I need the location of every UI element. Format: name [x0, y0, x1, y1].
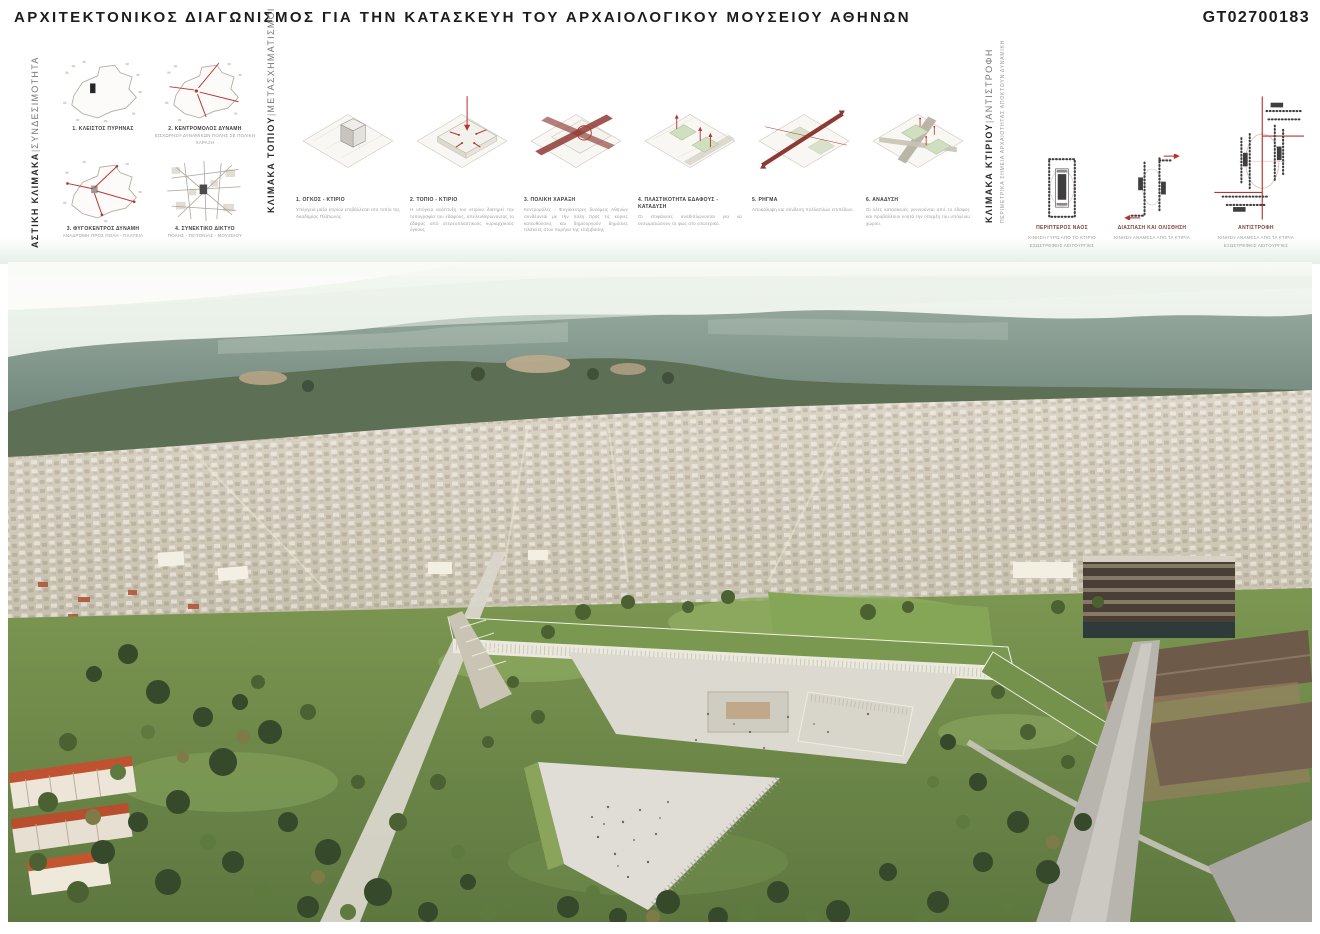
diagram-rift: 5. ΡΗΓΜΑ Αποκάλυψη και σύνδεση πολλαπλών… — [752, 88, 856, 234]
iso-rift-icon — [752, 88, 856, 190]
split-temple-plan-icon — [1123, 154, 1181, 220]
diagram-emergence: 6. ΑΝΑΔΥΣΗ Οι νέες κατασκευές γεννιούντα… — [866, 88, 970, 234]
diagram-centrifugal-force: 3. ΦΥΓΟΚΕΝΤΡΟΣ ΔΥΝΑΜΗ ΑΝΑΔΡΟΜΗ ΠΡΟΣ ΠΟΛΗ… — [52, 158, 154, 258]
diagram-peripteral-temple: ΠΕΡΙΠΤΕΡΟΣ ΝΑΟΣ ΚΙΝΗΣΗ ΓΥΡΩ ΑΠΟ ΤΟ ΚΤΙΡΙ… — [1018, 88, 1106, 251]
section-label-building-scale: ΚΛΙΜΑΚΑ ΚΤΙΡΙΟΥ|ΑΝΤΙΣΤΡΟΦΗ — [984, 58, 994, 223]
diagram-split-slide: ΔΙΑΣΠΑΣΗ ΚΑΙ ΟΛΙΣΘΗΣΗ ΚΙΝΗΣΗ ΑΝΑΜΕΣΑ ΑΠΟ… — [1106, 88, 1198, 251]
landscape-diagrams: 1. ΟΓΚΟΣ - ΚΤΙΡΙΟ Υπέργεια μάζα κτιρίου … — [296, 88, 972, 234]
section-label-landscape-scale: ΚΛΙΜΑΚΑ ΤΟΠΙΟΥ|ΜΕΤΑΣΧΗΜΑΤΙΣΜΟΙ — [266, 58, 276, 213]
network-plan-icon — [163, 158, 247, 224]
centripetal-plan-icon — [163, 58, 247, 124]
urban-diagrams: 1. ΚΛΕΙΣΤΟΣ ΠΥΡΗΝΑΣ 2. ΚΕΝΤΡΟΜΟΛΟΣ ΔΥΝΑΜ… — [52, 58, 258, 258]
diagram-closed-core: 1. ΚΛΕΙΣΤΟΣ ΠΥΡΗΝΑΣ — [52, 58, 154, 158]
centrifugal-plan-icon — [61, 158, 145, 224]
iso-emergence-icon — [866, 88, 970, 190]
competition-board: ΑΡΧΙΤΕΚΤΟΝΙΚΟΣ ΔΙΑΓΩΝΙΣΜΟΣ ΓΙΑ ΤΗΝ ΚΑΤΑΣ… — [0, 0, 1320, 934]
pinwheel-plan-icon — [1208, 96, 1304, 220]
diagram-polar-axes: 3. ΠΟΛΙΚΗ ΧΑΡΑΞΗ Κεντρομόλες - Φυγόκεντρ… — [524, 88, 628, 234]
entry-code: GT02700183 — [1203, 9, 1310, 27]
diagram-ground-plasticity: 4. ΠΛΑΣΤΙΚΟΤΗΤΑ ΕΔΑΦΟΥΣ - ΚΑΤΑΔΥΣΗ Οι επ… — [638, 88, 742, 234]
diagram-volume-building: 1. ΟΓΚΟΣ - ΚΤΙΡΙΟ Υπέργεια μάζα κτιρίου … — [296, 88, 400, 234]
aerial-rendering — [8, 262, 1312, 922]
temple-plan-icon — [1045, 156, 1079, 220]
diagram-cohesive-network: 4. ΣΥΝΕΚΤΙΚΟ ΔΙΚΤΥΟ ΠΟΛΗΣ - ΓΕΙΤΟΝΙΑΣ - … — [154, 158, 256, 258]
page-title: ΑΡΧΙΤΕΚΤΟΝΙΚΟΣ ΔΙΑΓΩΝΙΣΜΟΣ ΓΙΑ ΤΗΝ ΚΑΤΑΣ… — [14, 9, 911, 26]
section-sublabel-building-scale: ΠΕΡΙΜΕΤΡΙΚΑ ΣΗΜΕΙΑ ΑΡΧΑΙΟΤΗΤΑΣ ΑΠΟΚΤΟΥΝ … — [1000, 58, 1006, 223]
iso-slab-icon — [410, 88, 514, 190]
iso-crossing-axes-icon — [524, 88, 628, 190]
iso-volume-icon — [296, 88, 400, 190]
iso-courtyards-icon — [638, 88, 742, 190]
building-diagrams: ΠΕΡΙΠΤΕΡΟΣ ΝΑΟΣ ΚΙΝΗΣΗ ΓΥΡΩ ΑΠΟ ΤΟ ΚΤΙΡΙ… — [1018, 88, 1314, 251]
museum-pool — [726, 702, 770, 719]
diagram-centripetal-force: 2. ΚΕΝΤΡΟΜΟΛΟΣ ΔΥΝΑΜΗ ΕΙΣΧΩΡΗΣΗ ΔΥΝΑΜΙΚΩ… — [154, 58, 256, 158]
closed-core-plan-icon — [61, 58, 145, 124]
diagram-inversion: ΑΝΤΙΣΤΡΟΦΗ ΚΙΝΗΣΗ ΑΝΑΜΕΣΑ ΑΠΟ ΤΑ ΚΤΙΡΙΑ … — [1198, 88, 1314, 251]
section-label-urban-scale: ΑΣΤΙΚΗ ΚΛΙΜΑΚΑ|ΣΥΝΔΕΣΙΜΟΤΗΤΑ — [30, 56, 40, 248]
diagram-landscape-building: 2. ΤΟΠΙΟ - ΚΤΙΡΙΟ Η υπόγεια ανάπτυξη του… — [410, 88, 514, 234]
